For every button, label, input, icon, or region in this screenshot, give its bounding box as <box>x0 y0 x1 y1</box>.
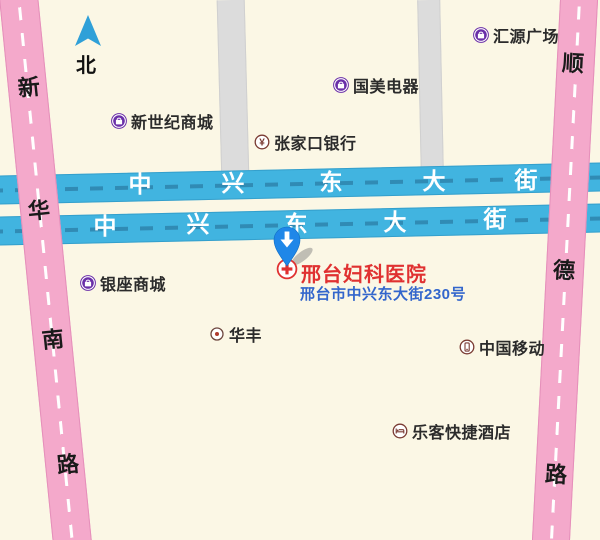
poi-label: 华丰 <box>229 322 262 346</box>
road-label-char: 街 <box>514 167 538 193</box>
road-label-char: 兴 <box>186 211 210 237</box>
destination-address: 邢台市中兴东大街230号 <box>300 283 466 304</box>
road-label-char: 顺 <box>560 50 585 77</box>
shopping-bag-icon <box>111 113 127 129</box>
svg-text:¥: ¥ <box>259 138 265 149</box>
road-label-char: 兴 <box>221 170 245 196</box>
poi-zhangjiakou-bank: ¥ 张家口银行 <box>254 133 357 151</box>
poi-label: 乐客快捷酒店 <box>412 419 511 443</box>
poi-label: 新世纪商城 <box>131 109 214 133</box>
poi-label: 汇源广场 <box>493 23 559 47</box>
road-centerline <box>0 175 600 192</box>
road-label-char: 南 <box>40 326 67 354</box>
road-zhongxing-upper <box>0 162 600 204</box>
mobile-phone-icon <box>459 339 475 355</box>
shopping-bag-icon <box>80 275 96 291</box>
poi-label: 国美电器 <box>353 73 419 97</box>
poi-label: 张家口银行 <box>274 130 357 154</box>
road-label-char: 华 <box>26 197 53 225</box>
poi-huiyuan-plaza: 汇源广场 <box>473 26 559 44</box>
road-label-char: 街 <box>483 206 507 232</box>
poi-gome-appliance: 国美电器 <box>333 76 419 94</box>
road-label-char: 中 <box>93 213 117 239</box>
poi-yinzuo-mall: 银座商城 <box>80 274 166 292</box>
poi-china-mobile: 中国移动 <box>459 338 545 356</box>
road-label-char: 大 <box>383 209 407 235</box>
poi-leke-express-hotel: 乐客快捷酒店 <box>392 422 511 440</box>
compass-label: 北 <box>76 49 96 78</box>
poi-new-century-mall: 新世纪商城 <box>111 112 214 130</box>
shopping-bag-icon <box>333 77 349 93</box>
road-label-char: 德 <box>551 257 576 284</box>
road-gray-1 <box>217 0 250 178</box>
road-label-char: 路 <box>543 461 568 488</box>
poi-label: 银座商城 <box>100 271 166 295</box>
road-label-char: 新 <box>16 74 43 102</box>
poi-label: 中国移动 <box>479 335 545 359</box>
road-label-char: 大 <box>422 168 446 194</box>
road-label-char: 中 <box>128 171 152 197</box>
dot-icon <box>209 326 225 342</box>
road-label-char: 路 <box>55 451 82 479</box>
road-label-char: 东 <box>319 169 343 195</box>
shopping-bag-icon <box>473 27 489 43</box>
poi-huafeng: 华丰 <box>209 325 262 343</box>
north-arrow-icon <box>74 14 102 53</box>
bed-icon <box>392 423 408 439</box>
road-gray-2 <box>417 0 444 172</box>
map-canvas: 中 兴 东 大 街 中 兴 东 大 街 新 华 南 路 顺 德 路 北 汇源广场… <box>0 0 600 540</box>
bank-yuan-icon: ¥ <box>254 134 270 150</box>
